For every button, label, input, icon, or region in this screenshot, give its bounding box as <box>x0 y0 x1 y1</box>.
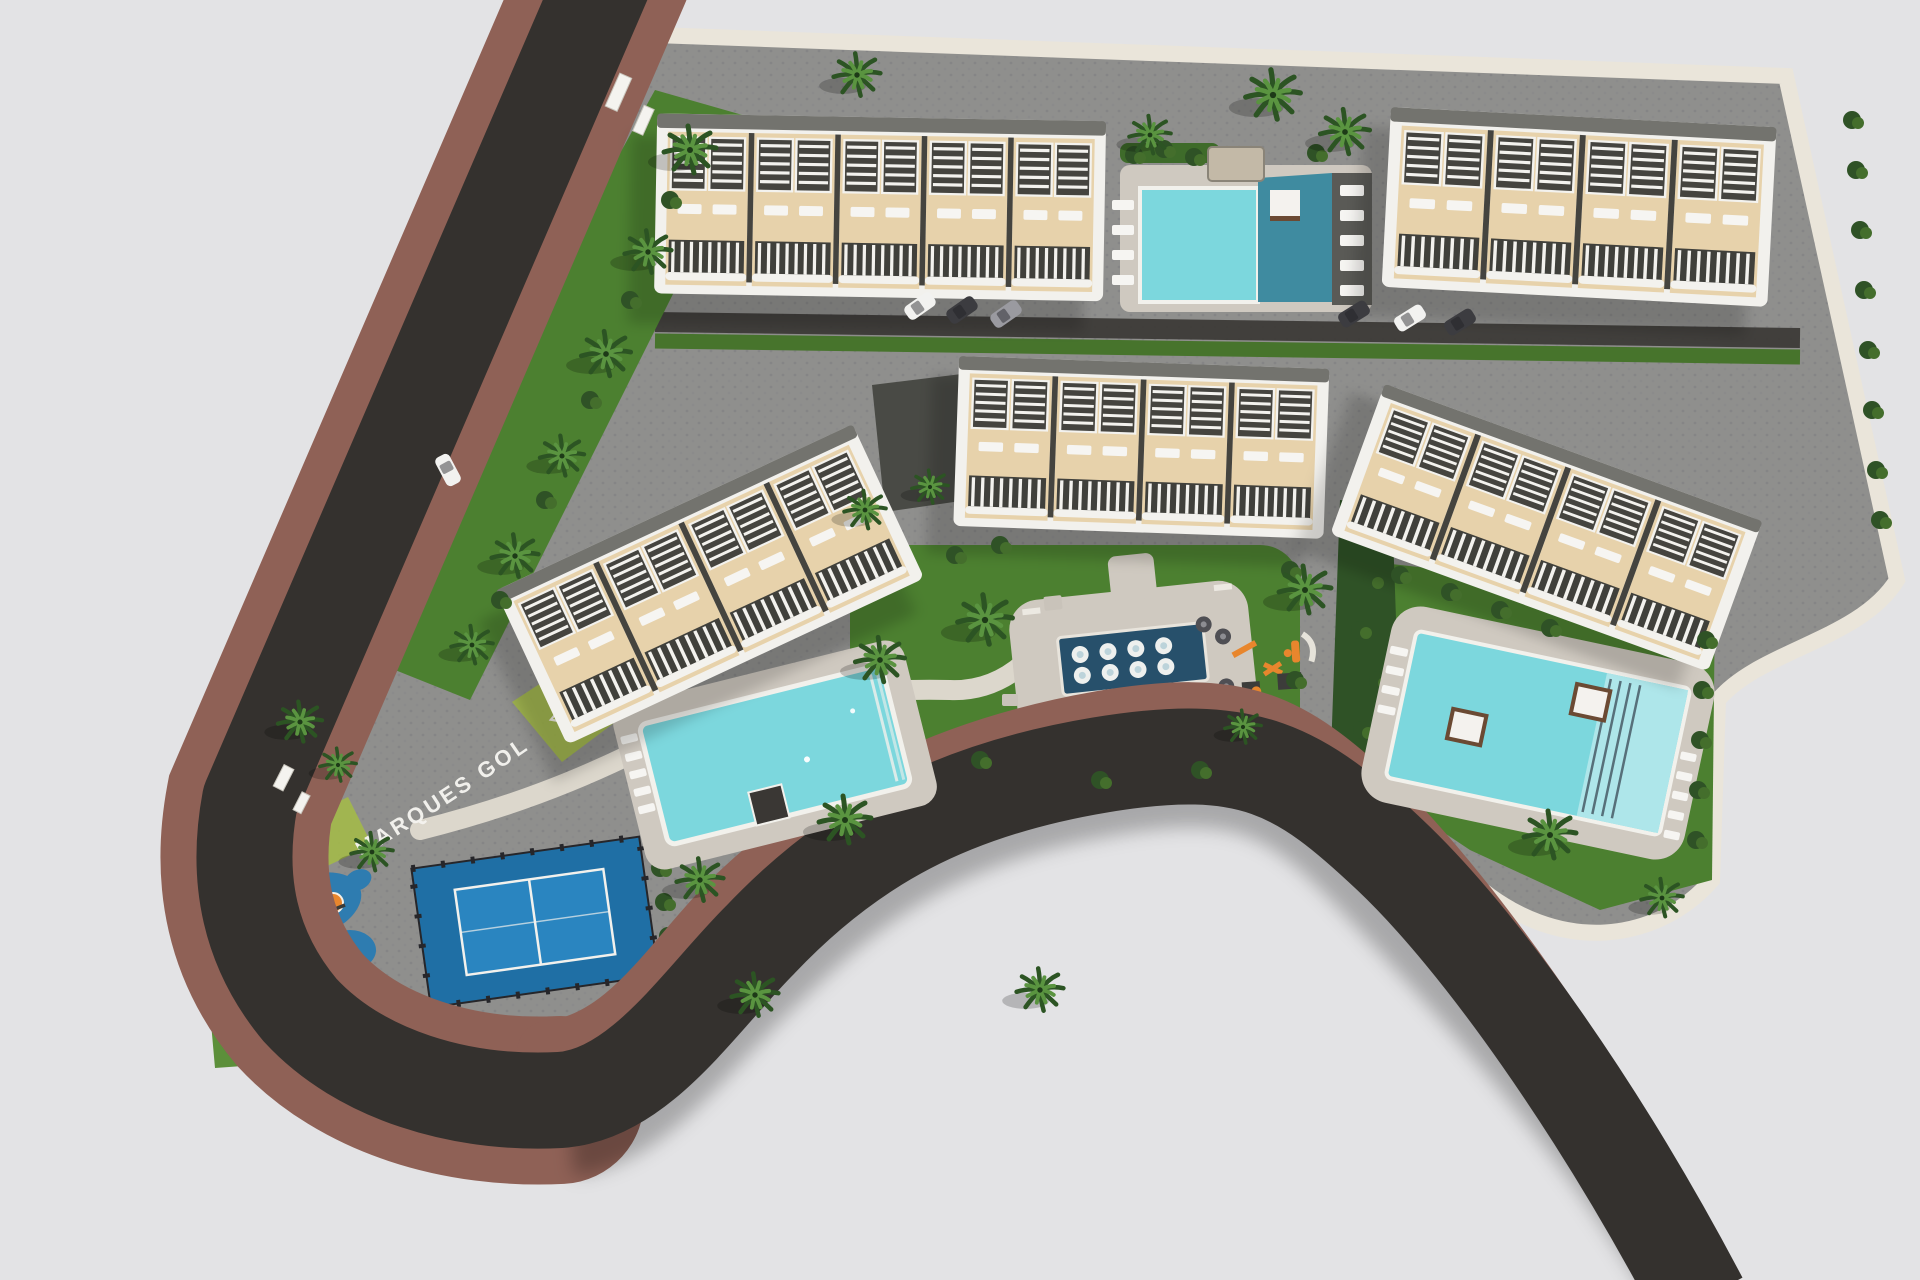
pool-water <box>1140 188 1258 302</box>
sun-lounger <box>1112 225 1134 235</box>
building-block-3 <box>926 355 1329 568</box>
shade-pergola <box>1208 147 1264 181</box>
aerial-render-canvas: MARQUES GOLF <box>0 0 1920 1280</box>
building-block-2 <box>1353 106 1777 338</box>
sun-lounger <box>1112 275 1134 285</box>
slide-orange <box>1291 640 1301 663</box>
sun-lounger <box>1112 250 1134 260</box>
top-pool-area <box>1112 140 1372 312</box>
daybed-frame <box>1270 216 1300 221</box>
pool-daybed <box>1447 709 1486 745</box>
site-plan-render: MARQUES GOLF <box>0 0 1920 1280</box>
sun-lounger <box>1112 200 1134 210</box>
pool-pavilion <box>748 784 789 825</box>
pool-daybed <box>1571 684 1610 720</box>
pool-daybed <box>1270 190 1300 216</box>
